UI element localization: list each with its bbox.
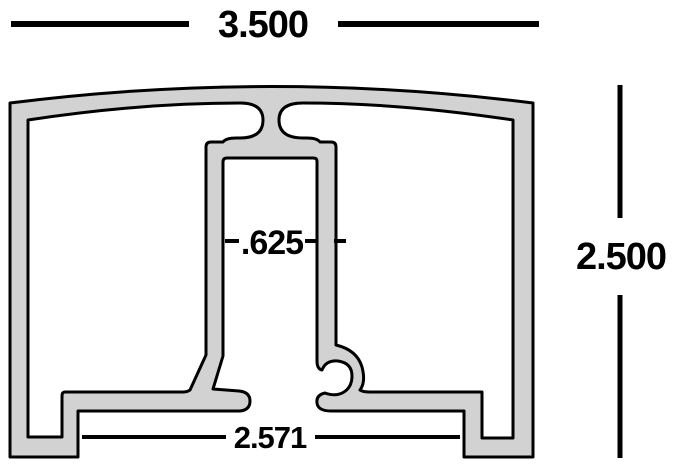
dimension-right-height-label: 2.500 — [576, 236, 666, 278]
dimension-right-height: 2.500 — [576, 85, 666, 458]
dimension-bottom-inner-width: 2.571 — [82, 420, 460, 455]
extrusion-cross-section-shape — [10, 87, 533, 458]
dimension-top-width: 3.500 — [11, 4, 539, 46]
dimension-slot-width-label: .625 — [241, 224, 303, 262]
cross-section-canvas: 3.500 2.500 .625 2.571 — [0, 0, 674, 464]
dimension-top-width-label: 3.500 — [218, 4, 308, 46]
extrusion-profile-drawing: 3.500 2.500 .625 2.571 — [0, 0, 674, 464]
dimension-bottom-inner-width-label: 2.571 — [234, 420, 307, 455]
